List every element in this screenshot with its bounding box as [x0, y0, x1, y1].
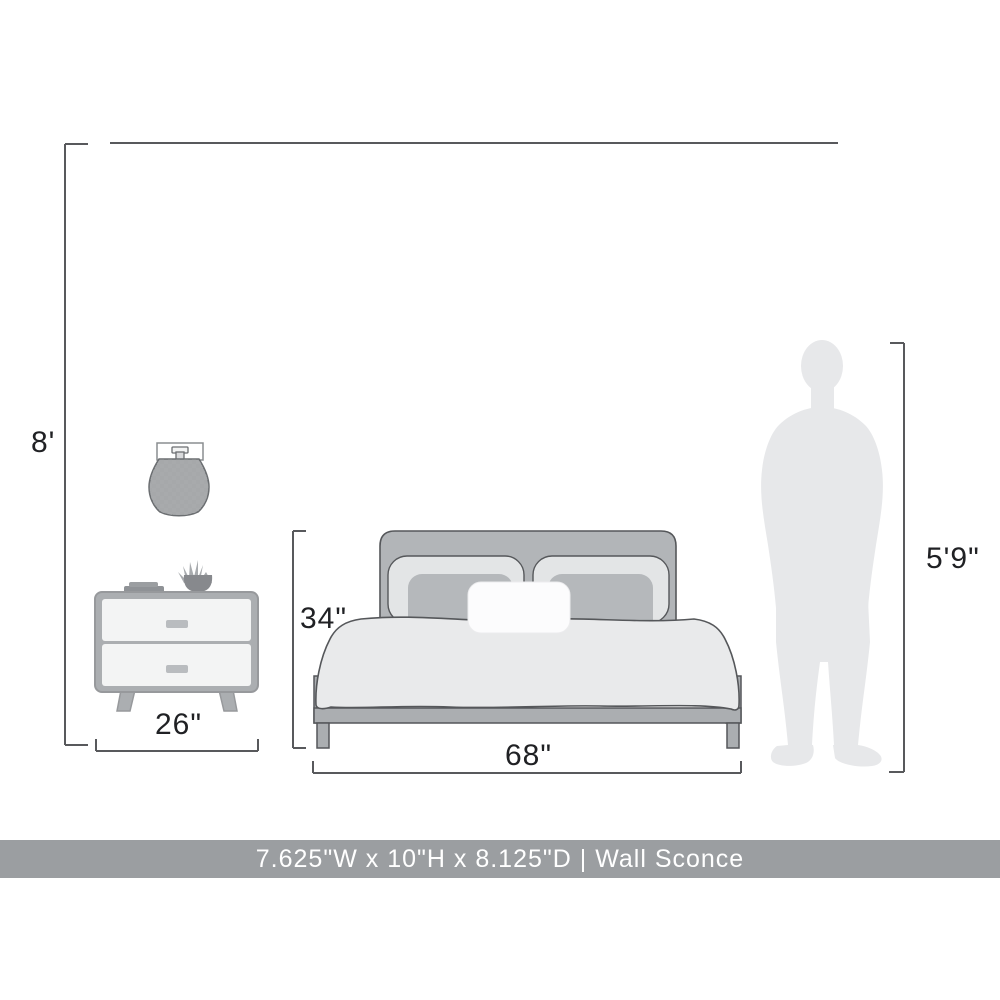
- plant-pot: [184, 575, 212, 592]
- sconce-woven-shade: [149, 459, 209, 516]
- book-top: [129, 582, 158, 587]
- person-height-dimension: 5'9": [889, 343, 980, 772]
- scale-diagram: 8' 26": [0, 0, 1000, 1000]
- person-left-shoe: [771, 745, 814, 766]
- diagram-svg: 8' 26": [0, 0, 1000, 1000]
- bed-right-leg: [727, 723, 739, 748]
- center-pillow: [468, 582, 570, 633]
- bed-width-label: 68": [505, 739, 552, 772]
- product-banner: 7.625"W x 10"H x 8.125"D | Wall Sconce: [0, 840, 1000, 878]
- drawer-handle-bottom: [166, 665, 188, 673]
- nightstand-right-leg: [219, 690, 237, 711]
- person-height-label: 5'9": [926, 542, 980, 575]
- drawer-handle-top: [166, 620, 188, 628]
- nightstand-width-label: 26": [155, 708, 202, 741]
- bed-height-label: 34": [300, 602, 347, 635]
- nightstand-left-leg: [117, 690, 135, 711]
- bed-left-leg: [317, 723, 329, 748]
- ceiling-height-label: 8': [31, 426, 55, 459]
- person-right-shoe: [833, 745, 882, 767]
- person-silhouette: [761, 340, 883, 767]
- bed-base-bar: [314, 708, 741, 723]
- wall-sconce: [149, 443, 209, 516]
- person-torso: [761, 407, 883, 608]
- nightstand: [95, 560, 258, 711]
- person-legs: [776, 600, 870, 745]
- banner-text: 7.625"W x 10"H x 8.125"D | Wall Sconce: [256, 845, 744, 873]
- nightstand-width-dimension: 26": [96, 708, 258, 751]
- bed-width-dimension: 68": [313, 739, 741, 773]
- person-neck: [811, 382, 834, 410]
- bed: [314, 531, 741, 748]
